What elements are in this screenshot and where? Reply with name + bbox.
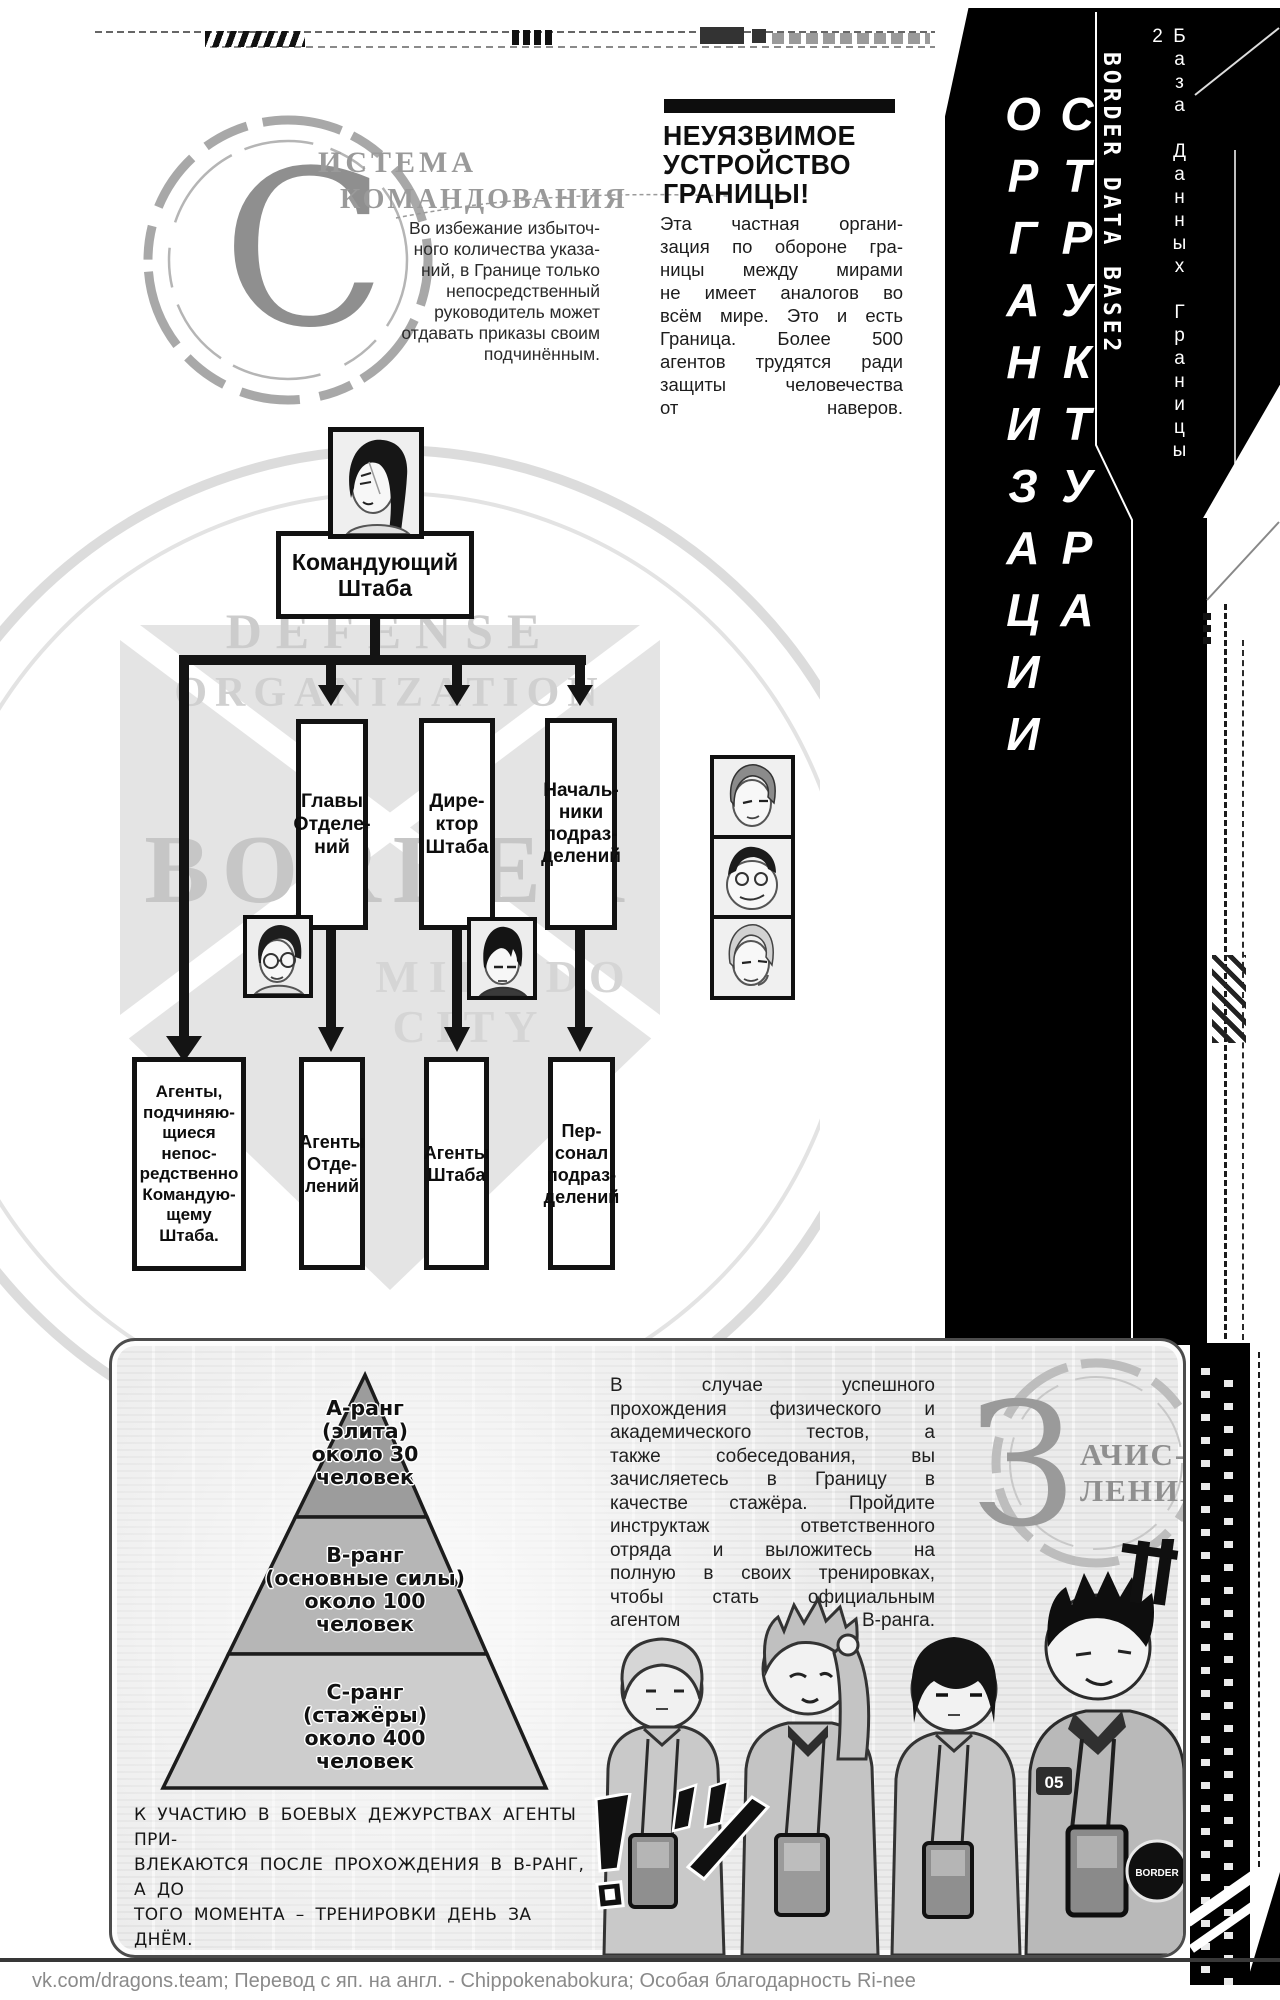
block-decor	[700, 27, 744, 44]
border-arm-patch-label: BORDER	[1135, 1868, 1179, 1879]
hatch-dashes-decor	[205, 31, 305, 47]
org-box-hq-director: Дире- ктор Штаба	[419, 718, 495, 930]
footer-divider	[0, 1958, 1280, 1962]
shoulder-badge-number: 05	[1045, 1773, 1064, 1792]
ditto-mark-icon	[670, 1779, 770, 1881]
command-system-title-line1: ИСТЕМА	[318, 146, 477, 180]
org-box-branch-chiefs: Главы Отделе- ний	[296, 719, 368, 930]
footer-credits: vk.com/dragons.team; Перевод с яп. на ан…	[32, 1970, 916, 1993]
org-box-hq-agents: Агенты Штаба	[424, 1057, 489, 1270]
pyramid-tier-c-label: С-ранг (стажёры) около 400 человек	[262, 1681, 468, 1773]
exclamation-mark-icon	[578, 1793, 644, 1915]
tower-windows-column	[1201, 1353, 1210, 1973]
command-system-body: Во избежание избыточ- ного количества ук…	[318, 218, 600, 365]
commander-portrait	[328, 427, 424, 539]
hatch-decor	[1212, 955, 1246, 1043]
border-info-title: НЕУЯЗВИМОЕ УСТРОЙСТВО ГРАНИЦЫ!	[663, 121, 856, 208]
branch-chief-portrait	[243, 915, 313, 998]
sidebar-title-vertical: СТРУКТУРА ОРГАНИЗАЦИИ	[996, 88, 1104, 1338]
org-box-branch-agents: Агенты Отде- лений	[299, 1057, 365, 1270]
square-dots-decor	[1203, 612, 1211, 644]
recruitment-title: АЧИС- ЛЕНИЕ	[1080, 1437, 1186, 1509]
character-man-spiky-hair	[742, 1599, 878, 1955]
org-box-commander: Командующий Штаба	[276, 531, 474, 619]
sidebar-db-label-en: BORDER DATA BASE2	[1098, 52, 1124, 472]
unit-head-portrait-3	[714, 919, 791, 995]
org-box-unit-staff: Пер- сонал подраз- делений	[548, 1057, 615, 1270]
corner-wedge-decor	[1246, 1872, 1280, 1985]
zigzag-decor	[772, 33, 930, 44]
pyramid-caption: К УЧАСТИЮ В БОЕВЫХ ДЕЖУРСТВАХ АГЕНТЫ ПРИ…	[134, 1803, 586, 1953]
command-system-title-line2: КОМАНДОВАНИЯ	[340, 184, 628, 216]
unit-head-portrait-1	[714, 759, 791, 835]
org-box-direct-agents: Агенты, подчиняю- щиеся непос- редственн…	[132, 1057, 246, 1271]
character-girl-bob-hair	[892, 1637, 1020, 1955]
heading-bar	[664, 99, 895, 113]
character-big-man-dark-hair: 05 BORDER	[1026, 1571, 1186, 1955]
unit-head-portrait-2	[714, 839, 791, 915]
characters-art: 05 BORDER	[574, 1539, 1186, 1955]
square-dashes-decor	[512, 30, 554, 45]
dropcap-recruitment: З	[970, 1381, 1076, 1551]
top-rope-line-2	[210, 46, 935, 48]
org-box-unit-heads: Началь- ники подраз- делений	[545, 718, 617, 930]
hq-director-portrait	[467, 917, 537, 1000]
dashed-circuit-line	[1258, 1352, 1260, 1867]
sidebar-db-label-ru: База Данных Границы 2	[1146, 26, 1190, 506]
block-decor-small	[752, 29, 766, 43]
unit-heads-portraits	[710, 755, 795, 1000]
manga-database-page: С ИСТЕМА КОМАНДОВАНИЯ Во избежание избыт…	[0, 0, 1280, 2000]
border-info-body: Эта частная органи- зация по обороне гра…	[660, 212, 903, 419]
recruitment-panel: А-ранг (элита) около 30 человек В-ранг (…	[109, 1338, 1186, 1958]
pyramid-tier-b-label: В-ранг (основные силы) около 100 человек	[262, 1544, 468, 1636]
pyramid-tier-a-label: А-ранг (элита) около 30 человек	[262, 1397, 468, 1489]
